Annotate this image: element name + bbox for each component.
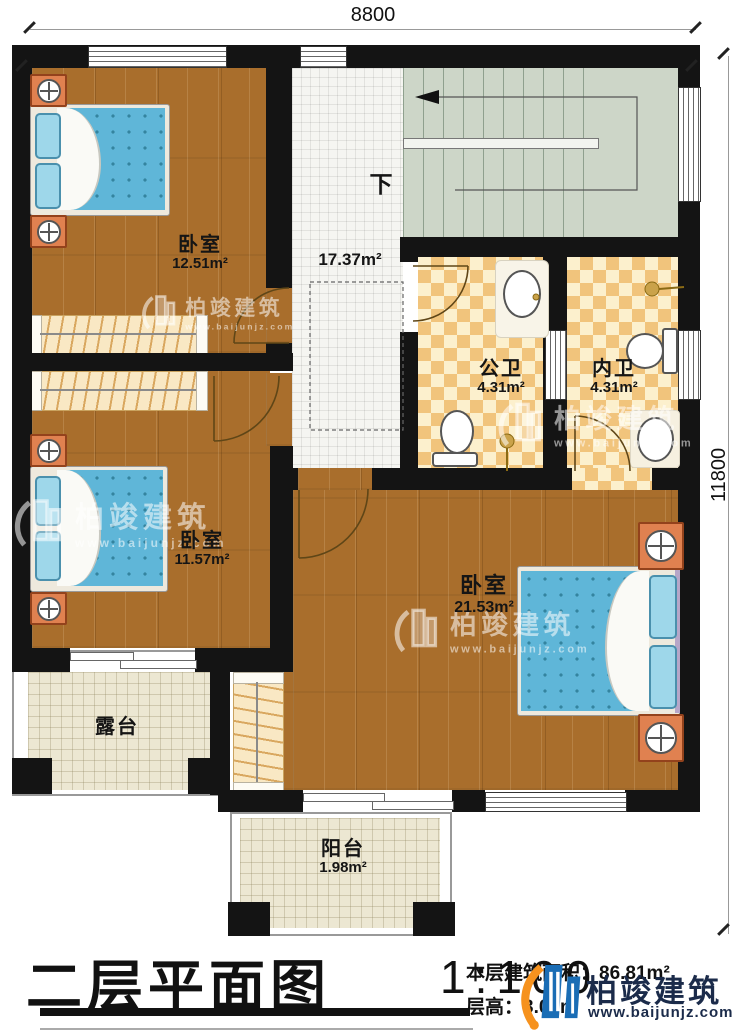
window <box>485 792 627 812</box>
dimension-top: 8800 <box>343 4 403 27</box>
closet-end-panel <box>196 371 208 411</box>
pillow <box>35 163 61 209</box>
room-area: 4.31m² <box>464 380 538 397</box>
closet-end-panel <box>233 672 284 684</box>
sliding-door <box>120 660 197 669</box>
room-area: 11.57m² <box>157 552 247 569</box>
company-url: www.baijunjz.com <box>588 1004 733 1021</box>
wall-master-bottom <box>625 790 700 812</box>
bed <box>517 566 680 716</box>
dimension-right: 11800 <box>708 420 731 530</box>
window <box>88 46 227 68</box>
closet-bedroom-master <box>233 672 284 794</box>
wall-bedrooms-divider <box>12 353 293 371</box>
door-threshold <box>298 468 372 490</box>
closet-bedroom-top <box>30 315 208 355</box>
closet-rod <box>256 682 258 782</box>
pillow <box>35 531 61 581</box>
nightstand-lamp <box>638 522 684 570</box>
sink-icon <box>495 260 549 338</box>
stairs-down-label: 下 <box>362 172 402 198</box>
room-label-bedroom-master: 卧室 21.53m² <box>428 574 540 617</box>
dimension-tick <box>689 21 702 34</box>
nightstand-lamp <box>638 714 684 762</box>
title-underline <box>40 1008 470 1016</box>
dimension-tick <box>23 21 36 34</box>
wall-master-bottom <box>218 790 303 812</box>
room-name: 内卫 <box>577 358 651 380</box>
pillar <box>12 758 52 794</box>
room-label-balcony: 阳台 1.98m² <box>302 838 384 877</box>
company-logo-icon <box>518 958 592 1032</box>
door-threshold <box>266 373 293 446</box>
bath-inner-door-threshold <box>572 468 652 490</box>
wall-bedroom-left-bottom <box>12 648 70 672</box>
closet-rod <box>40 389 196 391</box>
nightstand-lamp <box>30 74 67 107</box>
pillow <box>35 113 61 159</box>
dimension-line-top <box>30 29 696 30</box>
sliding-door <box>372 801 454 810</box>
wall-bedroom-hall <box>266 343 292 353</box>
room-label-bedroom-top: 卧室 12.51m² <box>155 234 245 273</box>
wall-master-bottom <box>452 790 485 812</box>
door-threshold <box>266 288 292 343</box>
company-logo: 柏竣建筑 www.baijunjz.com <box>518 956 750 1034</box>
room-name: 卧室 <box>157 530 247 552</box>
pillar <box>188 758 230 794</box>
toilet-icon <box>432 410 480 470</box>
pillar <box>228 902 270 936</box>
pillow <box>35 476 61 526</box>
room-label-bath-public: 公卫 4.31m² <box>464 358 538 397</box>
window <box>678 330 701 400</box>
room-name: 卧室 <box>428 574 540 599</box>
wall-bedroom-left-bottom <box>195 648 293 672</box>
window <box>678 87 701 202</box>
wall-bedroom-hall <box>266 45 292 288</box>
sink-icon <box>630 410 680 468</box>
pillow <box>649 645 677 709</box>
room-area: 21.53m² <box>428 599 540 617</box>
hall-area-label: 17.37m² <box>302 250 398 269</box>
floor-plan: 柏竣建筑 www.baijunjz.com 柏竣建筑 www.baijunjz.… <box>0 0 750 1034</box>
wall-bath-bottom <box>293 468 298 490</box>
pillow <box>649 575 677 639</box>
room-area: 12.51m² <box>155 256 245 273</box>
room-label-terrace: 露台 <box>76 716 158 738</box>
room-label-bedroom-left: 卧室 11.57m² <box>157 530 247 569</box>
room-name: 阳台 <box>302 838 384 860</box>
wall-bath-bottom <box>372 468 572 490</box>
wall-hall-bath <box>400 332 418 468</box>
room-area: 4.31m² <box>577 380 651 397</box>
room-area: 1.98m² <box>302 860 384 877</box>
bed <box>30 466 168 592</box>
room-name: 露台 <box>76 716 158 738</box>
stair-treads <box>403 68 597 237</box>
window <box>300 46 347 68</box>
wall-bath-bottom <box>652 468 678 490</box>
nightstand-lamp <box>30 592 67 625</box>
pillar <box>413 902 455 936</box>
wall-below-stairs <box>403 237 678 257</box>
nightstand-lamp <box>30 434 67 467</box>
room-name: 公卫 <box>464 358 538 380</box>
title-underline-thin <box>40 1028 473 1030</box>
closet-bedroom-left <box>30 371 208 411</box>
window-bath-divider <box>545 330 567 400</box>
closet-rod <box>40 333 196 335</box>
wall-bedroom-left-hall <box>270 446 293 648</box>
stair-landing-rail <box>403 138 599 149</box>
bed <box>30 104 170 216</box>
nightstand-lamp <box>30 215 67 248</box>
room-label-bath-inner: 内卫 4.31m² <box>577 358 651 397</box>
room-name: 卧室 <box>155 234 245 256</box>
closet-end-panel <box>196 315 208 355</box>
